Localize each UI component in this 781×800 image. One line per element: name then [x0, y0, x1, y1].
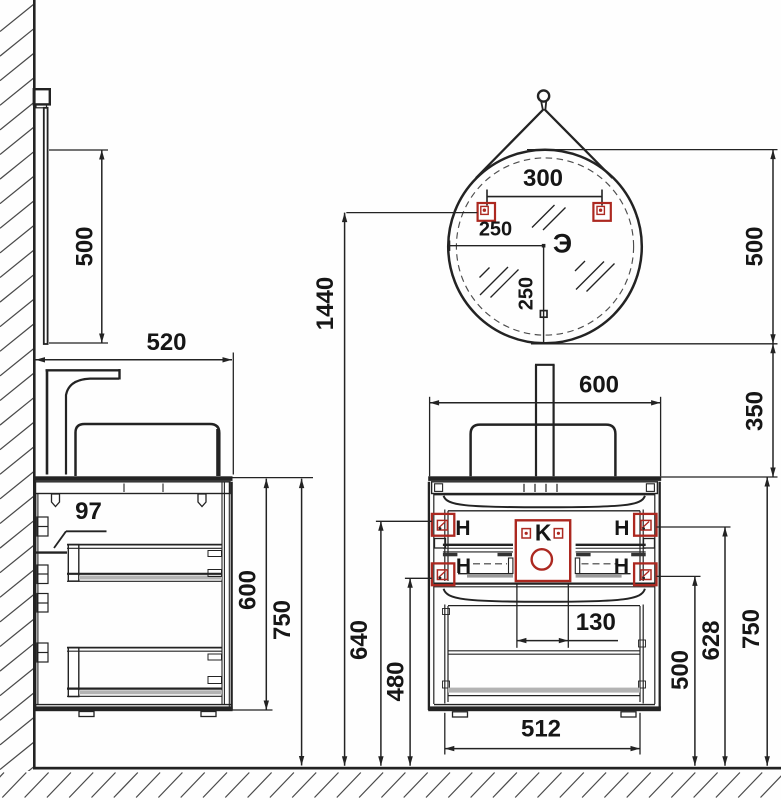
- svg-text:250: 250: [515, 277, 537, 310]
- svg-text:350: 350: [742, 391, 769, 431]
- svg-text:512: 512: [521, 716, 561, 743]
- svg-text:640: 640: [346, 620, 373, 660]
- svg-text:500: 500: [742, 226, 769, 266]
- svg-text:600: 600: [234, 570, 261, 610]
- svg-text:97: 97: [75, 498, 102, 525]
- svg-text:500: 500: [667, 650, 694, 690]
- svg-text:H: H: [456, 555, 471, 578]
- svg-text:500: 500: [72, 226, 99, 266]
- svg-text:H: H: [614, 517, 629, 540]
- svg-text:750: 750: [269, 600, 296, 640]
- svg-text:480: 480: [383, 661, 410, 701]
- svg-text:130: 130: [576, 609, 616, 636]
- svg-text:1440: 1440: [312, 277, 339, 330]
- svg-text:H: H: [455, 517, 470, 540]
- svg-text:H: H: [614, 555, 629, 578]
- svg-text:250: 250: [479, 219, 512, 241]
- svg-text:520: 520: [146, 329, 186, 356]
- svg-text:300: 300: [523, 165, 563, 192]
- svg-text:K: K: [535, 520, 552, 546]
- svg-text:628: 628: [698, 620, 725, 660]
- svg-text:750: 750: [738, 609, 765, 649]
- svg-text:600: 600: [579, 372, 619, 399]
- svg-text:Э: Э: [553, 229, 572, 259]
